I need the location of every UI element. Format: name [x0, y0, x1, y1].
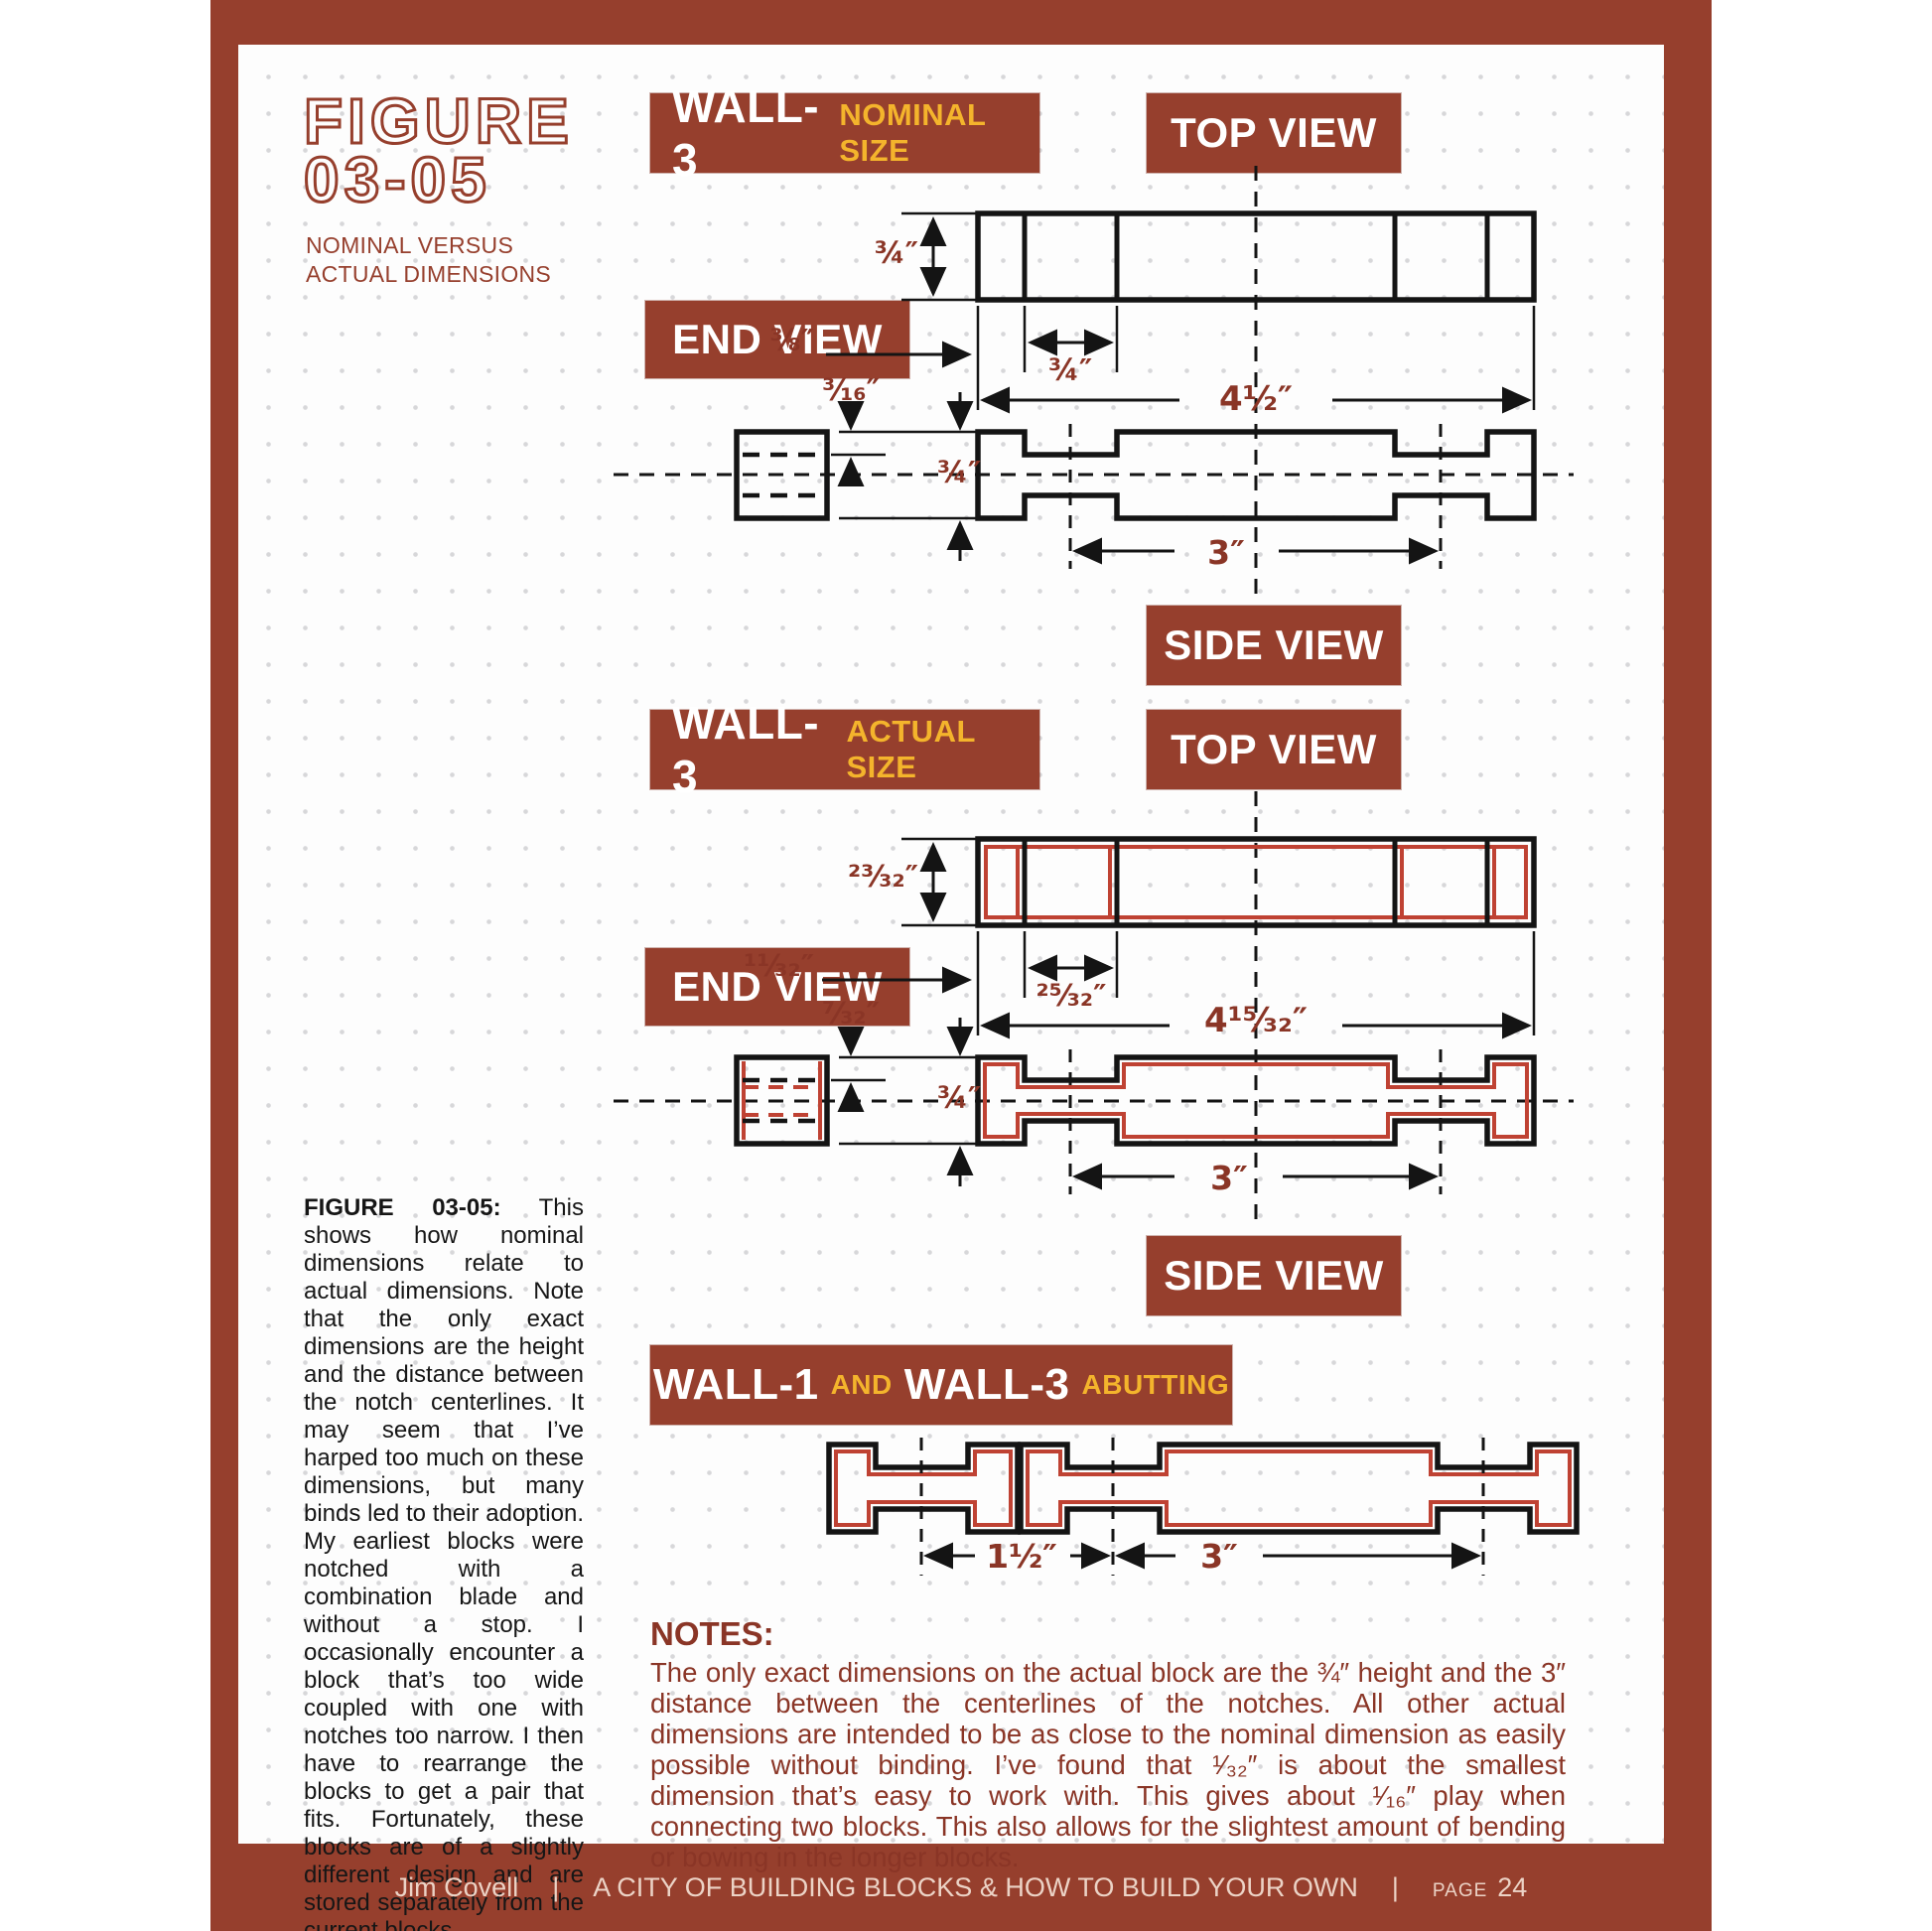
nominal-dimension-lines	[826, 213, 1534, 410]
figure-caption-body: This shows how nominal dimensions relate…	[304, 1194, 584, 1931]
dim-nominal-height: ¾″	[824, 239, 918, 269]
footer-author: Jim Covell	[395, 1872, 519, 1903]
dim-nominal-block-height: ¾″	[913, 459, 1005, 488]
dim-actual-overall-length: 4¹⁵⁄₃₂″	[1172, 1004, 1340, 1037]
nominal-end-view	[614, 392, 1574, 561]
dim-nominal-notch-depth: ³⁄₁₆″	[786, 376, 915, 406]
footer-separator-2: |	[1392, 1872, 1399, 1903]
figure-caption: FIGURE 03-05: This shows how nominal dim…	[304, 1194, 584, 1931]
dim-actual-height: ²³⁄₃₂″	[799, 863, 918, 893]
dim-nominal-notch-spacing: 3″	[1176, 536, 1276, 569]
dim-actual-notch-depth: ⁷⁄₃₂″	[786, 1000, 915, 1030]
figure-caption-lead: FIGURE 03-05:	[304, 1194, 501, 1221]
footer-book-title: A CITY OF BUILDING BLOCKS & HOW TO BUILD…	[593, 1872, 1358, 1903]
page-footer: Jim Covell | A CITY OF BUILDING BLOCKS &…	[210, 1872, 1712, 1903]
notes-heading: NOTES:	[650, 1615, 774, 1653]
footer-page-label: PAGE	[1433, 1880, 1487, 1902]
dim-actual-notch-width: ²⁵⁄₃₂″	[1008, 982, 1135, 1012]
footer-separator-1: |	[552, 1872, 559, 1903]
notes-body: The only exact dimensions on the actual …	[650, 1657, 1566, 1872]
dim-actual-block-height: ¾″	[913, 1084, 1005, 1114]
dim-abutting-wall1-spacing: 1½″	[961, 1540, 1082, 1573]
dim-abutting-wall3-spacing: 3″	[1170, 1540, 1269, 1573]
actual-end-view	[614, 1018, 1574, 1186]
book-page-photo: FIGURE 03-05 NOMINAL VERSUS ACTUAL DIMEN…	[0, 0, 1932, 1931]
dim-nominal-notch-width: ¾″	[1021, 356, 1120, 386]
dim-actual-notch-spacing: 3″	[1179, 1162, 1279, 1194]
footer-page-number: 24	[1497, 1872, 1527, 1903]
dim-nominal-edge-offset: ⅜″	[730, 327, 814, 356]
dim-actual-edge-offset: ¹¹⁄₃₂″	[703, 952, 814, 982]
dim-nominal-overall-length: 4½″	[1186, 382, 1325, 416]
page-body: FIGURE 03-05 NOMINAL VERSUS ACTUAL DIMEN…	[238, 45, 1664, 1844]
